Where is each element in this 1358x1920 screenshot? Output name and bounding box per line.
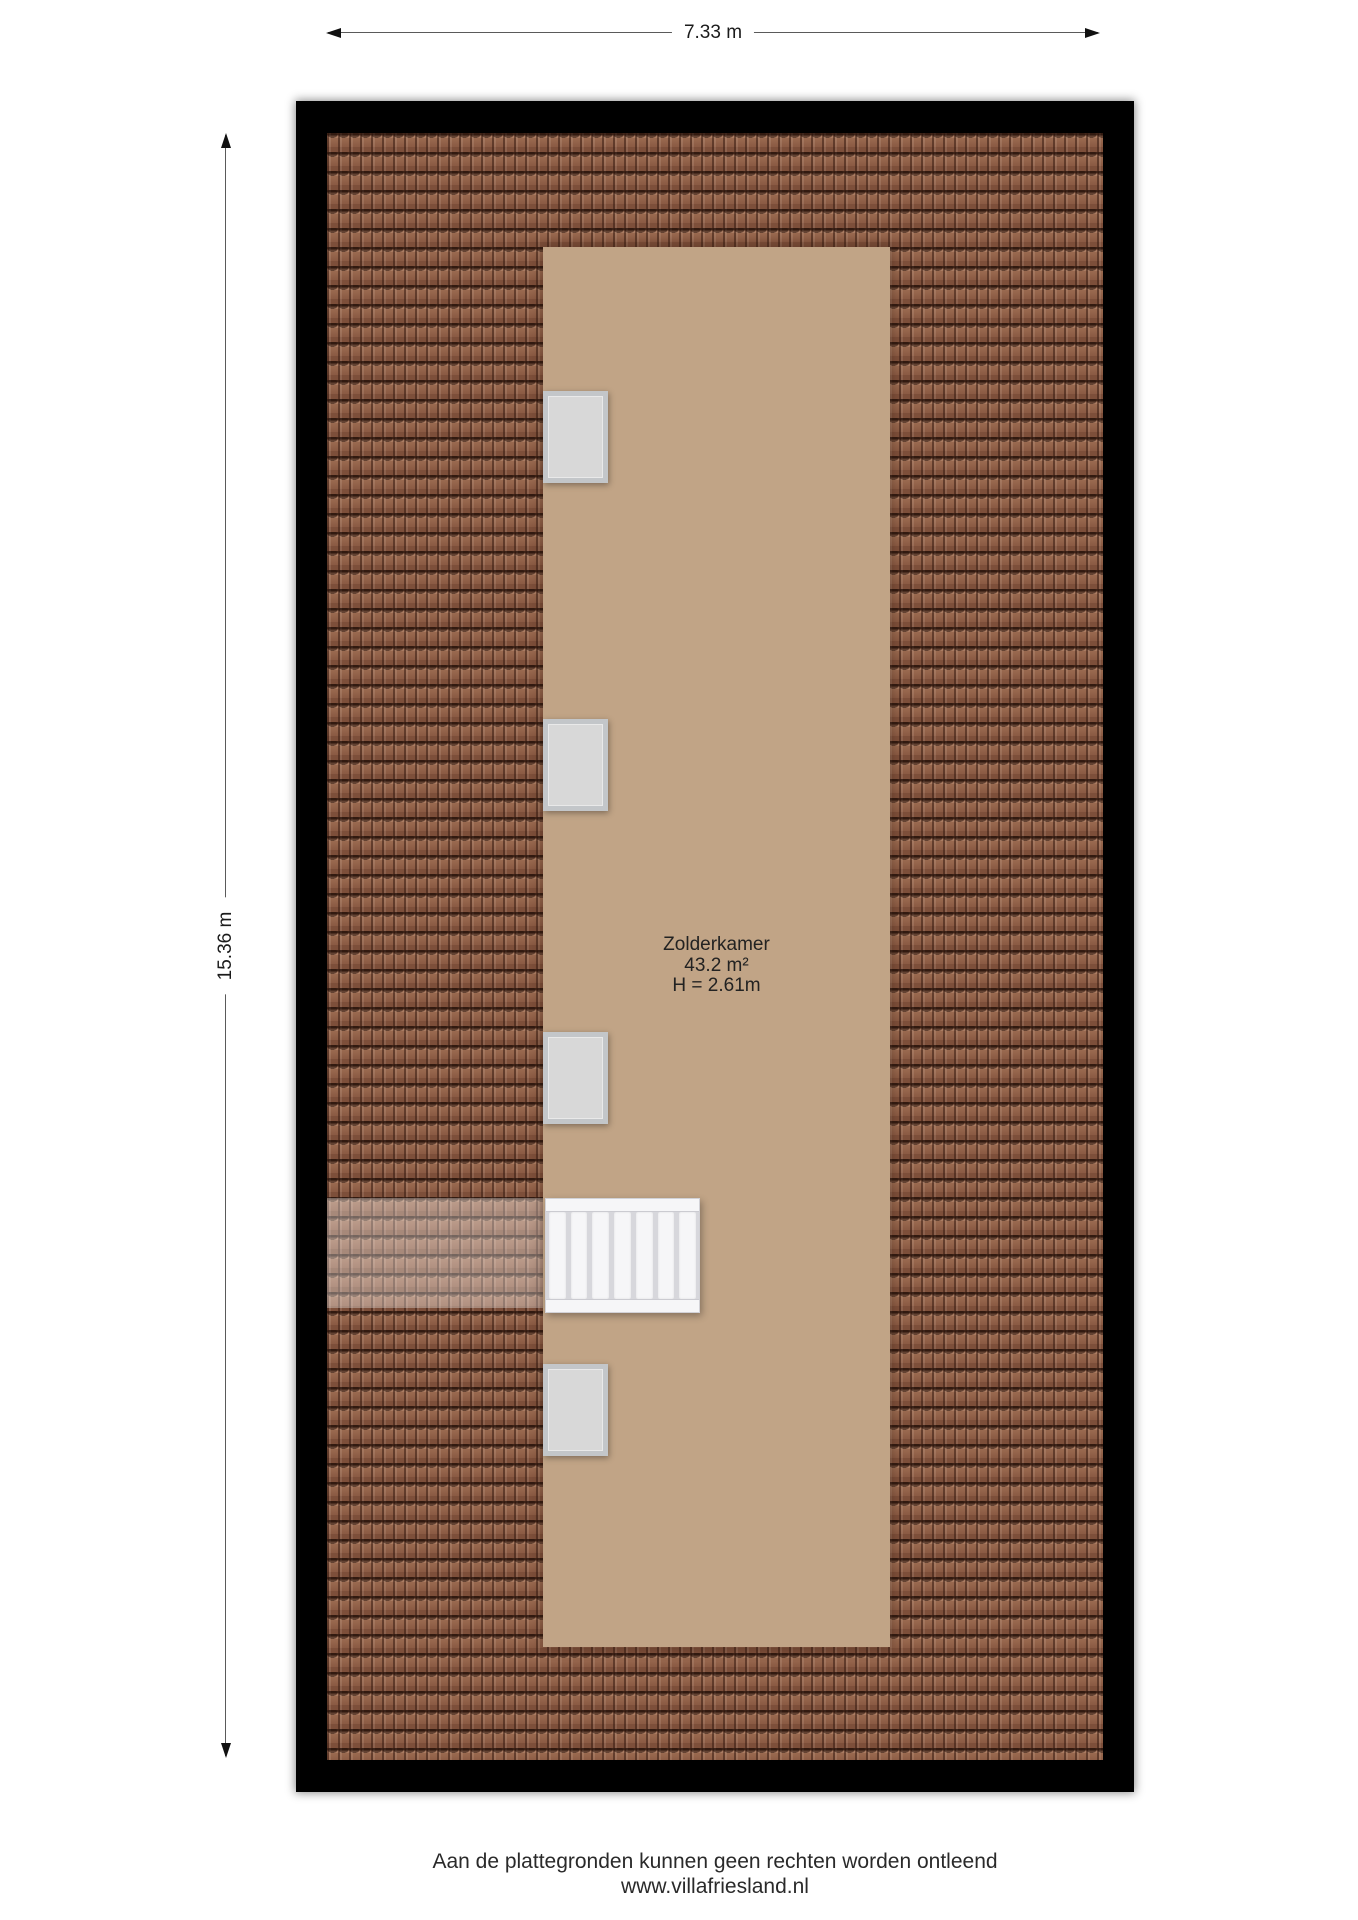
room-ceiling-height: H = 2.61m (543, 976, 890, 997)
roof-highlight-band (327, 1198, 545, 1308)
footer: Aan de plattegronden kunnen geen rechten… (296, 1849, 1134, 1899)
stair-tread (549, 1212, 566, 1299)
room-area: 43.2 m² (543, 956, 890, 977)
arrow-left-icon (326, 28, 341, 38)
stair-tread (614, 1212, 631, 1299)
staircase (545, 1198, 700, 1313)
arrow-up-icon (221, 133, 231, 148)
room-name: Zolderkamer (543, 935, 890, 956)
skylight-window-2 (543, 719, 608, 811)
footer-disclaimer: Aan de plattegronden kunnen geen rechten… (296, 1849, 1134, 1874)
stair-tread (679, 1212, 696, 1299)
height-dimension: 15.36 m (216, 133, 236, 1758)
width-dimension-label: 7.33 m (672, 22, 754, 44)
width-dimension: 7.33 m (326, 23, 1100, 43)
height-dimension-label: 15.36 m (215, 897, 237, 994)
skylight-window-4 (543, 1364, 608, 1456)
skylight-window-3 (543, 1032, 608, 1124)
floorplan-canvas: 7.33 m 15.36 m Zolderkamer 43.2 m² H = 2… (0, 0, 1358, 1920)
footer-website: www.villafriesland.nl (296, 1874, 1134, 1899)
stair-tread (658, 1212, 675, 1299)
arrow-down-icon (221, 1743, 231, 1758)
skylight-window-1 (543, 391, 608, 483)
stair-rail-top (546, 1199, 699, 1212)
stair-tread (592, 1212, 609, 1299)
stair-tread (571, 1212, 588, 1299)
stair-tread (636, 1212, 653, 1299)
arrow-right-icon (1085, 28, 1100, 38)
stair-rail-bottom (546, 1299, 699, 1312)
room-label: Zolderkamer 43.2 m² H = 2.61m (543, 935, 890, 997)
attic-floorplan: Zolderkamer 43.2 m² H = 2.61m (296, 101, 1134, 1792)
stair-treads (546, 1212, 699, 1299)
